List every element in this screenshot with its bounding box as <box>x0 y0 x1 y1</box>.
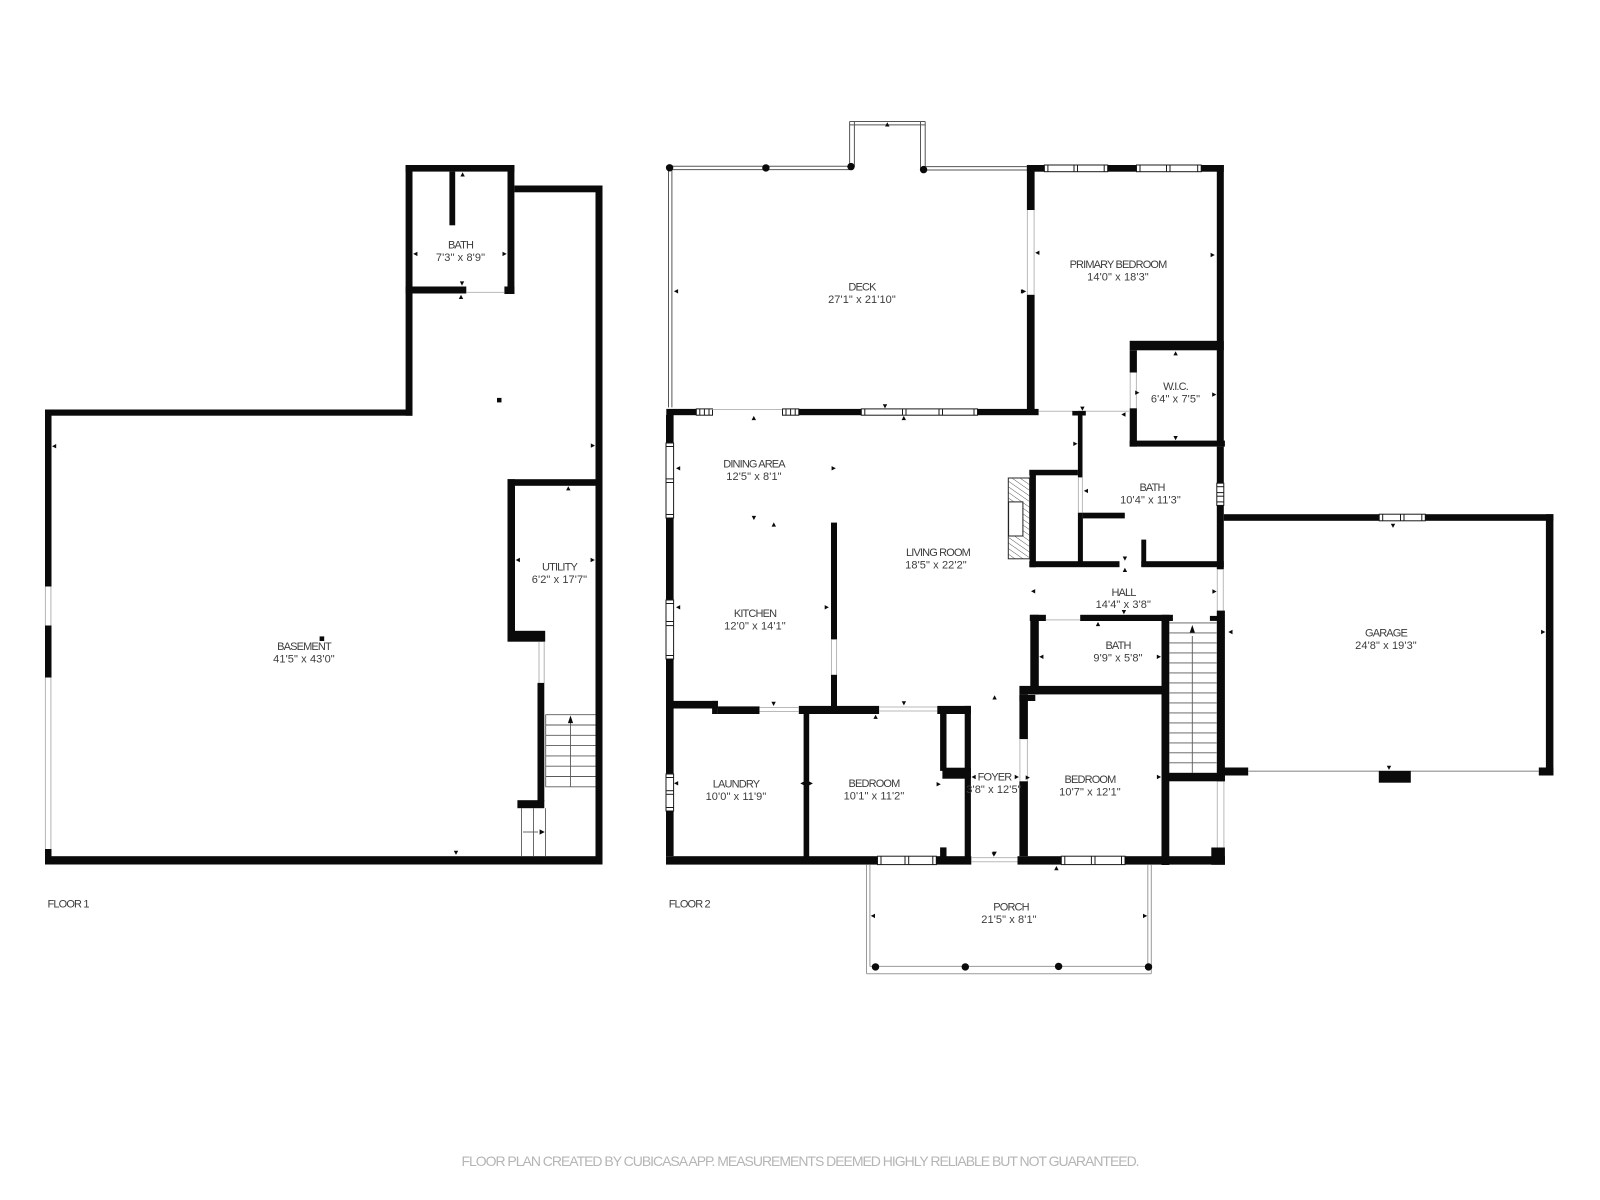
svg-text:HALL: HALL <box>1111 587 1136 599</box>
svg-text:6'2" x 17'7": 6'2" x 17'7" <box>532 574 587 586</box>
svg-text:DINING AREA: DINING AREA <box>723 459 786 471</box>
svg-text:12'5" x 8'1": 12'5" x 8'1" <box>726 471 781 483</box>
svg-text:BATH: BATH <box>448 240 474 252</box>
svg-text:BASEMENT: BASEMENT <box>277 641 332 653</box>
svg-text:KITCHEN: KITCHEN <box>734 608 777 620</box>
svg-text:14'0" x 18'3": 14'0" x 18'3" <box>1087 272 1149 284</box>
svg-text:27'1" x 21'10": 27'1" x 21'10" <box>828 294 896 306</box>
svg-text:24'8" x 19'3": 24'8" x 19'3" <box>1355 640 1417 652</box>
svg-text:DECK: DECK <box>848 281 877 293</box>
svg-text:LIVING ROOM: LIVING ROOM <box>906 547 971 559</box>
svg-text:GARAGE: GARAGE <box>1365 627 1407 639</box>
svg-text:UTILITY: UTILITY <box>542 561 579 573</box>
svg-text:7'3" x 8'9": 7'3" x 8'9" <box>436 252 485 264</box>
svg-text:10'0" x 11'9": 10'0" x 11'9" <box>706 791 767 803</box>
svg-text:PORCH: PORCH <box>993 902 1029 914</box>
svg-text:LAUNDRY: LAUNDRY <box>713 778 761 790</box>
svg-text:FLOOR 1: FLOOR 1 <box>48 898 90 910</box>
svg-text:10'4" x 11'3": 10'4" x 11'3" <box>1120 495 1181 507</box>
svg-text:3'8" x 12'5": 3'8" x 12'5" <box>966 784 1021 796</box>
svg-text:14'4" x 3'8": 14'4" x 3'8" <box>1096 599 1151 611</box>
svg-text:21'5" x 8'1": 21'5" x 8'1" <box>981 914 1036 926</box>
svg-text:BEDROOM: BEDROOM <box>849 778 901 790</box>
svg-text:FLOOR PLAN CREATED BY CUBICASA: FLOOR PLAN CREATED BY CUBICASA APP. MEAS… <box>461 1153 1138 1169</box>
svg-text:FLOOR 2: FLOOR 2 <box>669 898 711 910</box>
svg-text:10'7" x 12'1": 10'7" x 12'1" <box>1059 786 1121 798</box>
svg-text:W.I.C.: W.I.C. <box>1163 381 1189 393</box>
svg-text:41'5" x 43'0": 41'5" x 43'0" <box>273 654 335 666</box>
svg-text:BATH: BATH <box>1105 640 1131 652</box>
svg-text:BEDROOM: BEDROOM <box>1065 774 1117 786</box>
svg-text:6'4" x 7'5": 6'4" x 7'5" <box>1151 394 1200 406</box>
svg-text:10'1" x 11'2": 10'1" x 11'2" <box>844 790 905 802</box>
svg-text:12'0" x 14'1": 12'0" x 14'1" <box>724 620 786 632</box>
svg-text:PRIMARY BEDROOM: PRIMARY BEDROOM <box>1070 259 1168 271</box>
svg-text:9'9" x 5'8": 9'9" x 5'8" <box>1093 652 1142 664</box>
svg-text:FOYER: FOYER <box>978 772 1013 784</box>
svg-text:BATH: BATH <box>1139 482 1165 494</box>
svg-text:18'5" x 22'2": 18'5" x 22'2" <box>905 559 967 571</box>
